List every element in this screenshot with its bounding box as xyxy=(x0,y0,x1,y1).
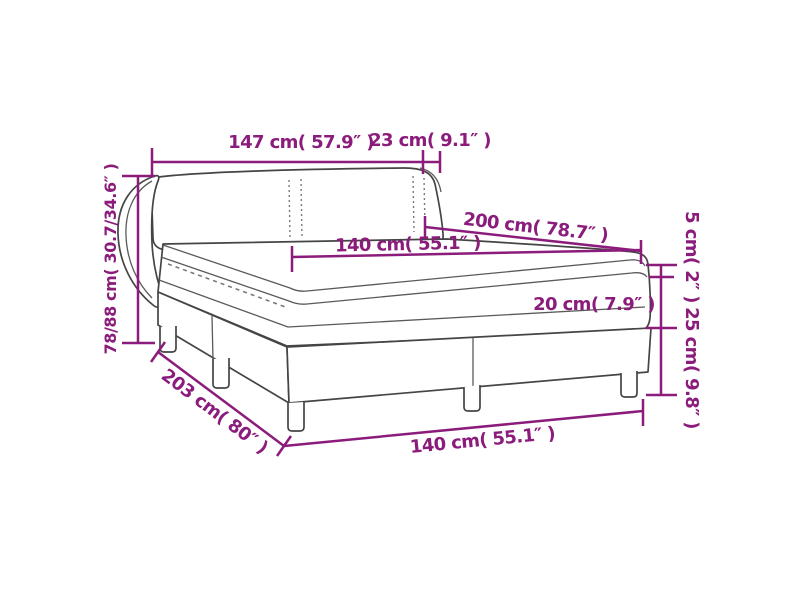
bed-leg xyxy=(213,358,229,388)
base-height-label: 25 cm( 9.8″ ) xyxy=(681,307,702,429)
headboard-width-label: 147 cm( 57.9″ ) xyxy=(228,132,374,153)
bed-dimension-diagram: 147 cm( 57.9″ ) 23 cm( 9.1″ ) 78/88 cm( … xyxy=(0,0,800,600)
mattress-height-label: 20 cm( 7.9″ ) xyxy=(533,294,655,315)
bed-width-label: 140 cm( 55.1″ ) xyxy=(409,423,556,458)
bed-leg xyxy=(621,371,637,397)
mattress-width-label: 140 cm( 55.1″ ) xyxy=(335,232,481,256)
topper-height-label: 5 cm( 2″ ) xyxy=(681,211,702,303)
headboard-side-depth-label: 23 cm( 9.1″ ) xyxy=(369,130,491,151)
bed-leg xyxy=(288,402,304,431)
bed-height-label: 78/88 cm( 30.7/34.6″ ) xyxy=(101,163,120,354)
bed-leg xyxy=(160,326,176,352)
bed-leg xyxy=(464,385,480,411)
